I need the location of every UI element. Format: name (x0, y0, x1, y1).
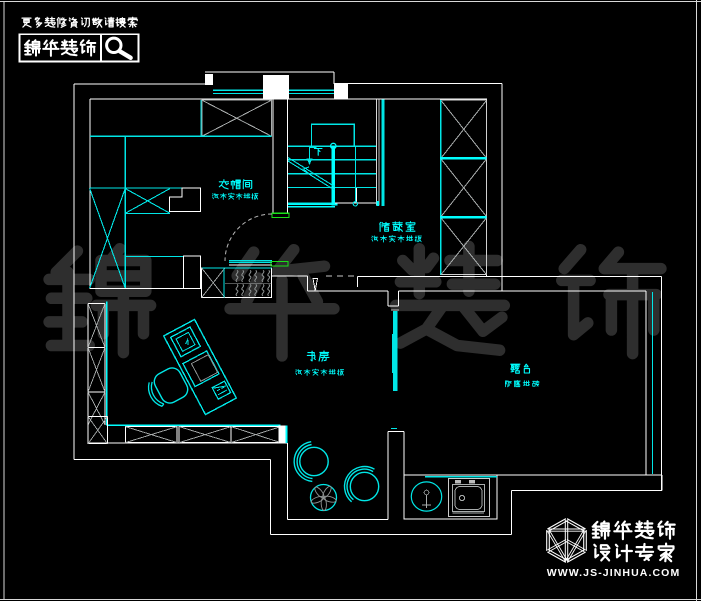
svg-text:WWW.JS-JINHUA.COM: WWW.JS-JINHUA.COM (547, 567, 681, 579)
